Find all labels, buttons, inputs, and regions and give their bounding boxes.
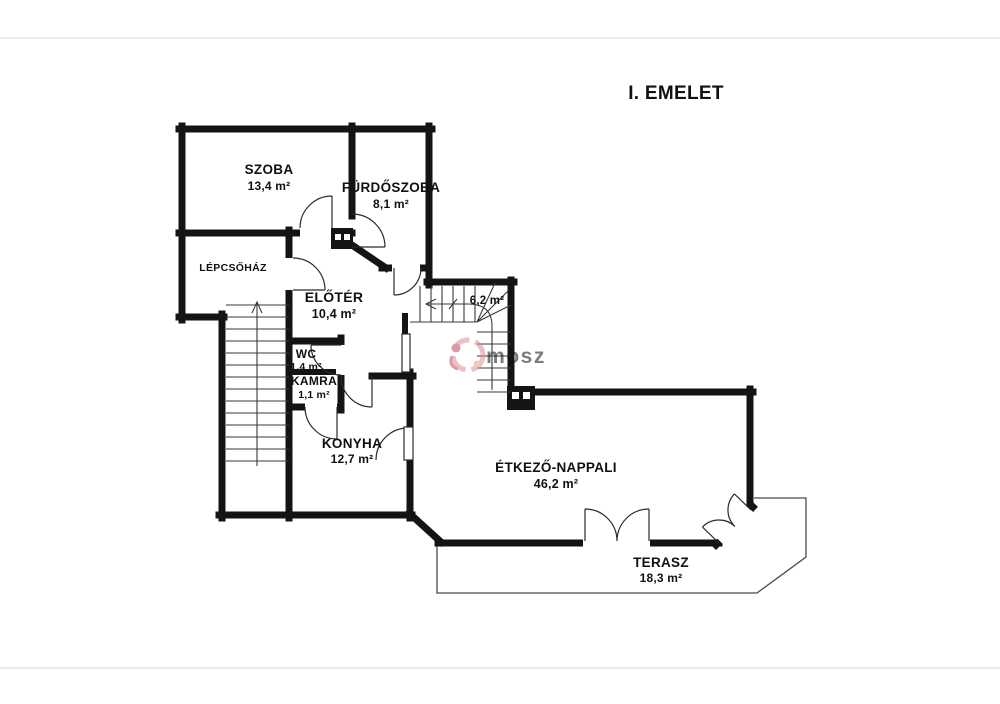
room-area-terasz: 18,3 m² (640, 571, 683, 585)
furdoszoba-door (352, 214, 385, 247)
room-area-konyha: 12,7 m² (331, 452, 374, 466)
room-label-etkezo: ÉTKEZŐ-NAPPALI (495, 460, 617, 475)
main-staircase (226, 302, 289, 466)
konyha-door (341, 376, 372, 407)
room-area-furdoszoba: 8,1 m² (373, 197, 409, 211)
room-label-terasz: TERASZ (633, 555, 689, 570)
page-title: I. EMELET (628, 83, 724, 104)
floor-plan-page: mosz I. EMELET SZOBA 13,4 m² FÜRDŐSZOBA … (0, 0, 1000, 704)
watermark: mosz (451, 340, 546, 370)
konyha-etkezo-door-leaf (404, 427, 413, 460)
room-label-furdoszoba: FÜRDŐSZOBA (342, 180, 440, 195)
watermark-logo-icon (451, 340, 483, 370)
room-label-eloter: ELŐTÉR (305, 288, 364, 305)
floor-plan-canvas: mosz I. EMELET SZOBA 13,4 m² FÜRDŐSZOBA … (0, 0, 1000, 704)
room-area-eloter: 10,4 m² (312, 307, 356, 321)
terrace-double-door (585, 509, 649, 541)
room-label-lepcsohaz: LÉPCSŐHÁZ (199, 261, 267, 274)
watermark-text: mosz (486, 345, 546, 368)
room-area-szoba: 13,4 m² (248, 179, 291, 193)
room-label-kamra: KAMRA (291, 374, 337, 388)
room-area-kamra: 1,1 m² (298, 389, 330, 401)
room-area-wc: 1,4 m² (290, 361, 322, 373)
room-area-etkezo: 46,2 m² (534, 477, 578, 491)
szoba-door (300, 196, 332, 228)
room-area-lepcso: 6,2 m² (470, 295, 504, 307)
lepcsohaz-door (293, 258, 325, 290)
room-label-szoba: SZOBA (245, 162, 294, 177)
room-label-wc: WC (296, 347, 317, 361)
room-label-konyha: KONYHA (322, 436, 382, 451)
eloter-stair-door-leaf (402, 334, 410, 372)
